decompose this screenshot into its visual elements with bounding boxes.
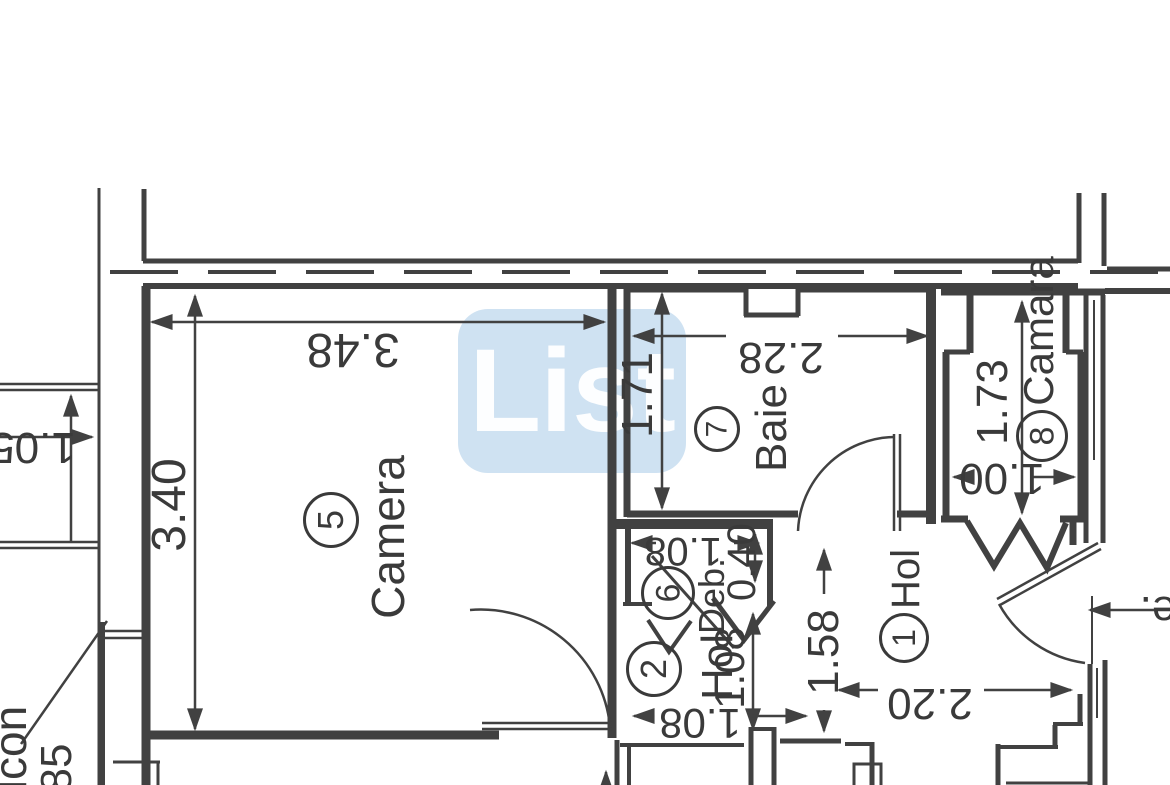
dim-camara-height: 1.73	[969, 349, 1017, 455]
room-baie-label: Baie	[746, 374, 798, 482]
dim-hol1-height: 1.58	[801, 594, 847, 710]
dim-camera-height: 3.40	[145, 447, 195, 563]
right-edge-label-partial: e.	[1118, 588, 1170, 634]
balcony-label-partial: lcon	[0, 693, 35, 785]
door-arc-baie	[798, 437, 894, 531]
room-hol1-label: Hol	[883, 540, 929, 618]
room-hol2-label: Hol	[693, 619, 743, 715]
dim-hol1-width: 2.20	[880, 680, 980, 726]
dim-bottom-left: 85	[34, 733, 80, 785]
dim-camera-width: 3.48	[278, 324, 428, 374]
room-baie-number: 7	[694, 406, 740, 452]
room-hol1-number: 1	[879, 613, 929, 663]
room-camara-number: 8	[1016, 410, 1068, 462]
dim-left-width: 1.05	[0, 424, 82, 470]
dim-baie-height: 1.71	[614, 347, 662, 443]
room-deb-number: 6	[641, 566, 695, 620]
floor-plan: List	[0, 0, 1170, 785]
room-hol2-number: 2	[626, 641, 682, 697]
door-arc-hol1	[999, 604, 1085, 663]
room-camera-label: Camera	[362, 445, 414, 629]
room-camera-number: 5	[303, 492, 359, 548]
door-arc-camera	[470, 610, 610, 726]
camara-zigzag-door	[967, 521, 1066, 568]
room-camara-label: Camara	[1014, 247, 1064, 415]
